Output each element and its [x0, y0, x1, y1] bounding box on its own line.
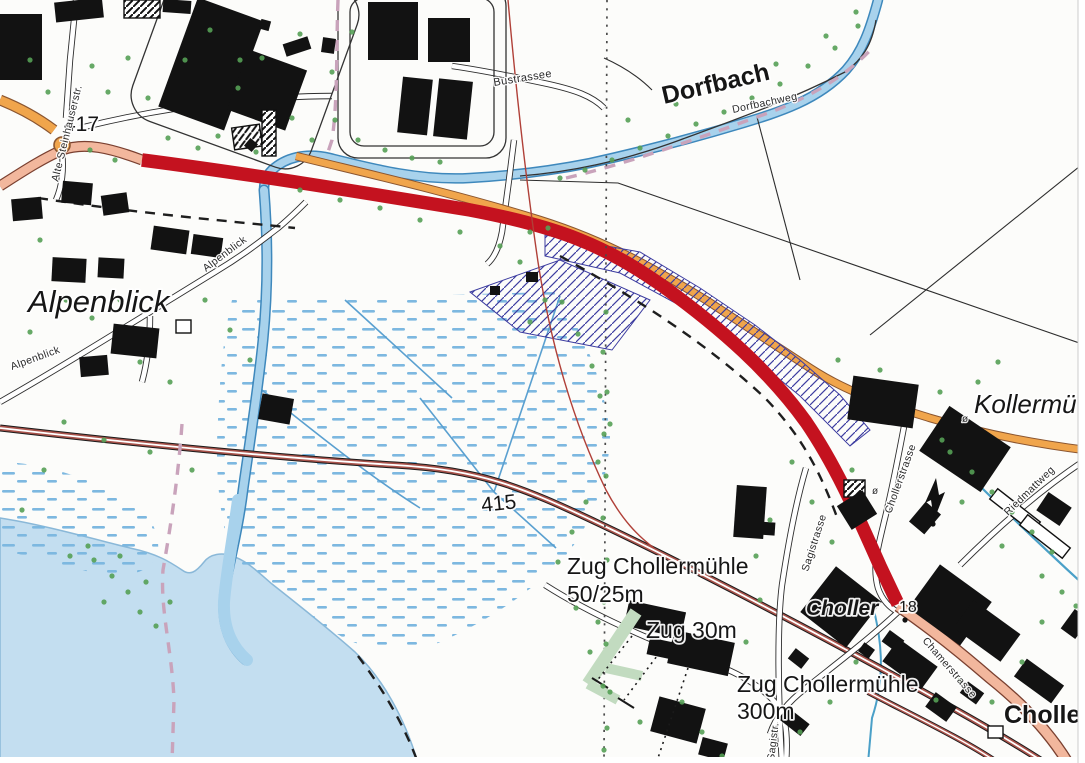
- building: [97, 257, 124, 278]
- tree-dot: [202, 297, 207, 302]
- tree-dot: [665, 133, 670, 138]
- tree-dot: [215, 133, 220, 138]
- tree-dot: [595, 619, 600, 624]
- tree-dot: [125, 55, 130, 60]
- tree-dot: [937, 389, 942, 394]
- tree-dot: [167, 599, 172, 604]
- tree-dot: [437, 159, 442, 164]
- tree-dot: [597, 393, 602, 398]
- route-end-marker: [902, 617, 907, 622]
- label-place-alpenblick: Alpenblick: [26, 284, 171, 319]
- tree-dot: [89, 63, 94, 68]
- tree-dot: [855, 23, 860, 28]
- building: [397, 77, 433, 136]
- tree-dot: [1059, 589, 1064, 594]
- tree-dot: [457, 229, 462, 234]
- tree-dot: [517, 259, 522, 264]
- tree-dot: [600, 349, 605, 354]
- tree-dot: [332, 117, 337, 122]
- tree-dot: [289, 115, 294, 120]
- tree-dot: [527, 319, 532, 324]
- tree-dot: [601, 431, 606, 436]
- building: [79, 355, 109, 377]
- label-measure-300-line2: 300m: [737, 698, 795, 724]
- tree-dot: [297, 187, 302, 192]
- building-under-construction: [262, 110, 276, 156]
- tree-dot: [67, 553, 72, 558]
- tree-dot: [27, 57, 32, 62]
- tree-dot: [777, 81, 782, 86]
- building: [368, 2, 418, 60]
- label-place-choller: Choller: [806, 597, 880, 620]
- tree-dot: [559, 299, 564, 304]
- tree-dot: [117, 553, 122, 558]
- building: [526, 272, 538, 282]
- building-under-construction: [124, 0, 160, 18]
- tree-dot: [1039, 573, 1044, 578]
- building: [111, 324, 160, 359]
- building: [51, 257, 86, 283]
- tree-dot: [137, 609, 142, 614]
- tree-dot: [41, 467, 46, 472]
- tree-dot: [947, 449, 952, 454]
- tree-dot: [247, 357, 252, 362]
- tree-dot: [933, 697, 938, 702]
- tree-dot: [45, 89, 50, 94]
- label-place-kollermuehle: Kollermü: [974, 389, 1077, 419]
- tree-dot: [109, 573, 114, 578]
- map-canvas[interactable]: 417 415 18 Alpenblick Kollermü Choller D…: [0, 0, 1085, 763]
- tree-dot: [125, 589, 130, 594]
- label-measure-zug30: Zug 30m: [646, 617, 737, 643]
- tree-dot: [105, 89, 110, 94]
- tree-dot: [542, 297, 547, 302]
- tree-dot: [227, 327, 232, 332]
- tree-dot: [587, 649, 592, 654]
- tree-dot: [753, 553, 758, 558]
- tree-dot: [989, 699, 994, 704]
- label-measure-300-line1: Zug Chollermühle: [737, 671, 919, 697]
- tree-dot: [607, 689, 612, 694]
- tree-dot: [297, 31, 302, 36]
- tree-dot: [527, 229, 532, 234]
- tree-dot: [767, 517, 772, 522]
- tree-dot: [583, 499, 588, 504]
- tree-dot: [87, 147, 92, 152]
- tree-dot: [999, 543, 1004, 548]
- tree-dot: [699, 729, 704, 734]
- building: [151, 226, 190, 255]
- tree-dot: [601, 747, 606, 752]
- building: [428, 18, 470, 62]
- tree-dot: [417, 217, 422, 222]
- tree-dot: [557, 175, 562, 180]
- tree-dot: [237, 57, 242, 62]
- tree-dot: [877, 367, 882, 372]
- building: [321, 37, 336, 54]
- tree-dot: [939, 437, 944, 442]
- tree-dot: [137, 359, 142, 364]
- tree-dot: [589, 363, 594, 368]
- tree-dot: [1019, 659, 1024, 664]
- tree-dot: [582, 167, 587, 172]
- tree-dot: [609, 157, 614, 162]
- label-measure-50-line1: Zug Chollermühle: [567, 553, 749, 579]
- tree-dot: [61, 419, 66, 424]
- tree-dot: [805, 63, 810, 68]
- tree-dot: [603, 641, 608, 646]
- tree-dot: [823, 33, 828, 38]
- tree-dot: [637, 145, 642, 150]
- tree-dot: [497, 243, 502, 248]
- tree-dot: [112, 157, 117, 162]
- tree-dot: [19, 507, 24, 512]
- tree-dot: [207, 27, 212, 32]
- label-point-18: 18: [899, 599, 917, 616]
- tree-dot: [679, 699, 684, 704]
- tree-dot: [789, 459, 794, 464]
- tree-dot: [637, 719, 642, 724]
- building: [176, 320, 191, 333]
- building: [490, 286, 500, 295]
- tree-dot: [101, 437, 106, 442]
- building: [0, 14, 42, 80]
- tree-dot: [195, 145, 200, 150]
- tree-dot: [545, 225, 550, 230]
- tree-dot: [835, 357, 840, 362]
- tree-dot: [101, 599, 106, 604]
- map-svg: 417 415 18 Alpenblick Kollermü Choller D…: [0, 0, 1085, 763]
- tree-dot: [189, 467, 194, 472]
- building: [163, 0, 192, 14]
- tree-dot: [604, 725, 609, 730]
- building: [847, 376, 918, 429]
- tree-dot: [853, 659, 858, 664]
- tree-dot: [37, 237, 42, 242]
- tree-dot: [809, 499, 814, 504]
- tree-dot: [625, 117, 630, 122]
- building: [11, 197, 43, 222]
- tree-dot: [575, 331, 580, 336]
- building: [258, 393, 294, 424]
- tree-dot: [797, 729, 802, 734]
- label-measure-50-line2: 50/25m: [567, 581, 644, 607]
- tree-dot: [143, 579, 148, 584]
- building: [988, 726, 1003, 738]
- tree-dot: [604, 389, 609, 394]
- tree-dot: [693, 121, 698, 126]
- tree-dot: [253, 149, 258, 154]
- tree-dot: [309, 137, 314, 142]
- tree-dot: [743, 639, 748, 644]
- tree-dot: [235, 85, 240, 90]
- tree-dot: [969, 469, 974, 474]
- tree-dot: [721, 109, 726, 114]
- tree-dot: [555, 559, 560, 564]
- tree-dot: [382, 147, 387, 152]
- tree-dot: [27, 329, 32, 334]
- tree-dot: [569, 529, 574, 534]
- tree-dot: [182, 57, 187, 62]
- tree-dot: [989, 489, 994, 494]
- tree-dot: [603, 309, 608, 314]
- tree-dot: [355, 137, 360, 142]
- tree-dot: [337, 197, 342, 202]
- tree-dot: [409, 155, 414, 160]
- tree-dot: [829, 539, 834, 544]
- tree-dot: [147, 449, 152, 454]
- tree-dot: [853, 9, 858, 14]
- tree-dot: [603, 473, 608, 478]
- building: [101, 192, 130, 215]
- label-symbol-diameter-1: ø: [872, 486, 879, 497]
- tree-dot: [1039, 619, 1044, 624]
- label-station-choller: Cholle: [1004, 701, 1080, 729]
- tree-dot: [259, 55, 264, 60]
- tree-dot: [145, 95, 150, 100]
- tree-dot: [91, 557, 96, 562]
- tree-dot: [607, 421, 612, 426]
- tree-dot: [832, 45, 837, 50]
- tree-dot: [1029, 529, 1034, 534]
- tree-dot: [849, 467, 854, 472]
- building: [757, 521, 776, 535]
- tree-dot: [377, 205, 382, 210]
- building: [433, 78, 473, 139]
- tree-dot: [153, 623, 158, 628]
- tree-dot: [757, 597, 762, 602]
- tree-dot: [167, 379, 172, 384]
- tree-dot: [600, 683, 605, 688]
- tree-dot: [975, 379, 980, 384]
- tree-dot: [995, 359, 1000, 364]
- tree-dot: [329, 69, 334, 74]
- tree-dot: [165, 135, 170, 140]
- label-symbol-diameter-2: ø: [962, 414, 969, 425]
- label-elevation-415: 415: [480, 490, 517, 517]
- tree-dot: [600, 515, 605, 520]
- tree-dot: [595, 459, 600, 464]
- tree-dot: [85, 543, 90, 548]
- building: [61, 181, 93, 206]
- tree-dot: [827, 699, 832, 704]
- tree-dot: [773, 61, 778, 66]
- tree-dot: [1049, 549, 1054, 554]
- tree-dot: [959, 499, 964, 504]
- tree-dot: [349, 29, 354, 34]
